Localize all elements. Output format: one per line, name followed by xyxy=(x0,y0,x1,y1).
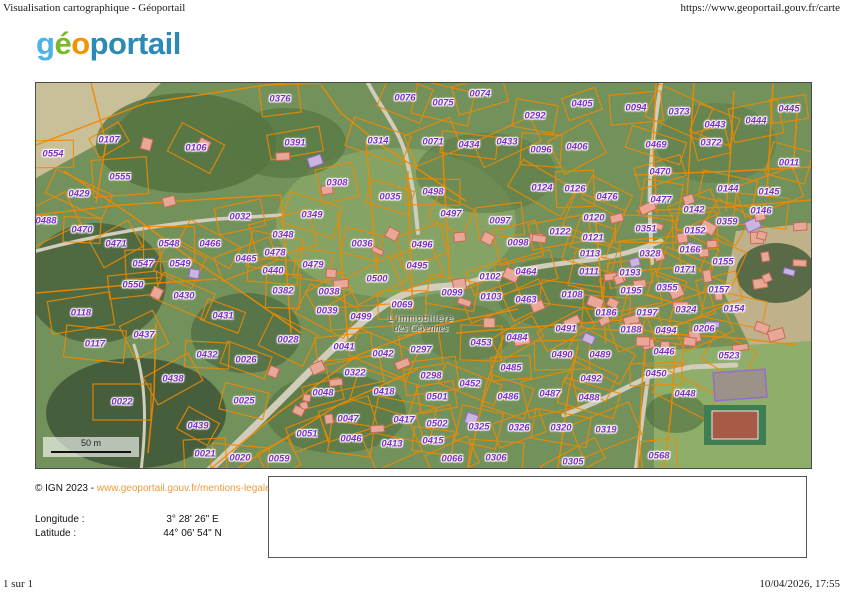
parcel-number-label: 0444 xyxy=(745,116,766,127)
parcel-number-label: 0326 xyxy=(508,423,529,434)
building xyxy=(454,232,466,242)
parcel-number-label: 0489 xyxy=(589,350,610,361)
building xyxy=(761,252,770,262)
parcel-number-label: 0166 xyxy=(679,245,700,256)
building xyxy=(793,222,807,231)
browser-print-title: Visualisation cartographique - Géoportai… xyxy=(3,2,185,14)
parcel-number-label: 0121 xyxy=(582,233,603,244)
parcel-number-label: 0319 xyxy=(595,425,616,436)
latitude-value: 44° 06' 54" N xyxy=(135,528,250,539)
parcel-number-label: 0059 xyxy=(268,454,289,465)
parcel-number-label: 0099 xyxy=(441,288,462,299)
parcel-number-label: 0488 xyxy=(578,393,599,404)
parcel-number-label: 0106 xyxy=(185,143,206,154)
building xyxy=(189,269,200,279)
parcel-number-label: 0111 xyxy=(579,267,599,278)
parcel-number-label: 0478 xyxy=(264,248,285,259)
parcel-number-label: 0431 xyxy=(212,311,233,322)
parcel-number-label: 0432 xyxy=(196,350,217,361)
parcel-number-label: 0042 xyxy=(372,349,393,360)
parcel-number-label: 0051 xyxy=(296,429,317,440)
parcel-number-label: 0487 xyxy=(539,389,560,400)
parcel-number-label: 0550 xyxy=(122,280,143,291)
coordinates-block: Longitude : 3° 28' 26" E Latitude : 44° … xyxy=(35,514,250,542)
parcel-number-label: 0154 xyxy=(723,304,744,315)
parcel-number-label: 0439 xyxy=(187,421,208,432)
parcel-number-label: 0433 xyxy=(496,137,517,148)
parcel-number-label: 0372 xyxy=(700,138,721,149)
parcel-number-label: 0155 xyxy=(712,257,733,268)
parcel-number-label: 0445 xyxy=(778,104,799,115)
parcel-number-label: 0046 xyxy=(340,434,361,445)
parcel-number-label: 0415 xyxy=(422,436,443,447)
parcel-number-label: 0096 xyxy=(530,145,551,156)
parcel-number-label: 0491 xyxy=(555,324,576,335)
parcel-number-label: 0486 xyxy=(497,392,518,403)
parcel-number-label: 0438 xyxy=(162,374,183,385)
parcel-number-label: 0413 xyxy=(381,439,402,450)
parcel-number-label: 0144 xyxy=(717,184,738,195)
building xyxy=(683,337,696,347)
parcel-number-label: 0452 xyxy=(459,379,480,390)
building xyxy=(324,414,333,424)
parcel-number-label: 0032 xyxy=(229,212,250,223)
logo-letter-o: o xyxy=(71,26,89,61)
parcel-number-label: 0298 xyxy=(420,371,441,382)
parcel-number-label: 0041 xyxy=(333,342,354,353)
parcel-number-label: 0025 xyxy=(233,396,254,407)
parcel-number-label: 0325 xyxy=(468,422,489,433)
parcel-number-label: 0470 xyxy=(649,167,670,178)
parcel-number-label: 0349 xyxy=(301,210,322,221)
parcel-number-label: 0450 xyxy=(645,369,666,380)
parcel-number-label: 0477 xyxy=(650,195,671,206)
logo-letter-g: g xyxy=(36,26,54,61)
parcel-number-label: 0498 xyxy=(422,187,443,198)
scale-bar-line xyxy=(51,451,131,453)
parcel-number-label: 0074 xyxy=(469,89,490,100)
parcel-number-label: 0502 xyxy=(426,419,447,430)
logo-word-portail: portail xyxy=(90,26,181,61)
parcel-number-label: 0523 xyxy=(718,351,739,362)
parcel-number-label: 0028 xyxy=(277,335,298,346)
parcel-number-label: 0355 xyxy=(656,283,677,294)
parcel-number-label: 0484 xyxy=(506,333,527,344)
parcel-number-label: 0418 xyxy=(373,387,394,398)
parcel-number-label: 0193 xyxy=(619,268,640,279)
parcel-number-label: 0405 xyxy=(571,99,592,110)
parcel-number-label: 0494 xyxy=(655,326,676,337)
parcel-number-label: 0066 xyxy=(441,454,462,465)
parcel-number-label: 0305 xyxy=(562,457,583,468)
parcel-number-label: 0297 xyxy=(410,345,431,356)
place-name-label: L'immobilière des Cévennes xyxy=(388,313,454,335)
building xyxy=(636,337,650,346)
parcel-number-label: 0117 xyxy=(85,339,105,350)
parcel-number-label: 0322 xyxy=(344,368,365,379)
parcel-number-label: 0171 xyxy=(674,265,695,276)
print-datetime: 10/04/2026, 17:55 xyxy=(759,578,840,590)
parcel-number-label: 0464 xyxy=(515,267,536,278)
parcel-number-label: 0476 xyxy=(596,192,617,203)
parcel-number-label: 0500 xyxy=(366,274,387,285)
parcel-number-label: 0547 xyxy=(132,259,153,270)
building xyxy=(757,231,768,240)
parcel-number-label: 0036 xyxy=(351,239,372,250)
longitude-label: Longitude : xyxy=(35,514,135,525)
parcel-number-label: 0071 xyxy=(422,137,443,148)
parcel-number-label: 0376 xyxy=(269,94,290,105)
parcel-number-label: 0103 xyxy=(480,292,501,303)
parcel-number-label: 0391 xyxy=(284,138,305,149)
parcel-number-label: 0434 xyxy=(458,140,479,151)
parcel-number-label: 0430 xyxy=(173,291,194,302)
geoportail-logo: géoportail xyxy=(36,28,181,59)
building xyxy=(702,270,712,283)
parcel-number-label: 0306 xyxy=(485,453,506,464)
parcel-number-label: 0195 xyxy=(620,286,641,297)
copyright-line: © IGN 2023 - www.geoportail.gouv.fr/ment… xyxy=(35,483,276,494)
parcel-number-label: 0406 xyxy=(566,142,587,153)
parcel-number-label: 0320 xyxy=(550,423,571,434)
parcel-number-label: 0142 xyxy=(683,205,704,216)
parcel-number-label: 0469 xyxy=(645,140,666,151)
parcel-number-label: 0145 xyxy=(758,187,779,198)
parcel-number-label: 0373 xyxy=(668,107,689,118)
parcel-number-label: 0069 xyxy=(391,300,412,311)
parcel-number-label: 0497 xyxy=(440,209,461,220)
parcel-number-label: 0011 xyxy=(779,158,799,169)
parcel-number-label: 0348 xyxy=(272,230,293,241)
parcel-number-label: 0120 xyxy=(583,213,604,224)
place-name-line1: L'immobilière xyxy=(388,313,454,323)
parcel-number-label: 0479 xyxy=(302,260,323,271)
parcel-number-label: 0495 xyxy=(406,261,427,272)
parcel-number-label: 0314 xyxy=(367,136,388,147)
parcel-number-label: 0324 xyxy=(675,305,696,316)
parcel-number-label: 0448 xyxy=(674,389,695,400)
logo-letter-e: é xyxy=(54,26,71,61)
parcel-number-label: 0118 xyxy=(71,308,91,319)
parcel-number-label: 0146 xyxy=(750,206,771,217)
copyright-text: © IGN 2023 - xyxy=(35,483,97,494)
parcel-number-label: 0443 xyxy=(704,120,725,131)
map-viewport[interactable]: 0107055401060555042903760076039103140308… xyxy=(35,82,812,469)
parcel-number-label: 0122 xyxy=(549,227,570,238)
parcel-number-label: 0107 xyxy=(98,135,119,146)
parcel-number-label: 0026 xyxy=(235,355,256,366)
parcel-number-label: 0429 xyxy=(68,189,89,200)
parcel-number-label: 0097 xyxy=(489,216,510,227)
parcel-number-label: 0437 xyxy=(133,330,154,341)
parcel-number-label: 0102 xyxy=(479,272,500,283)
parcel-number-label: 0470 xyxy=(71,225,92,236)
building xyxy=(326,269,337,278)
parcel-number-label: 0038 xyxy=(318,287,339,298)
parcel-number-label: 0206 xyxy=(693,324,714,335)
parcel-number-label: 0035 xyxy=(379,192,400,203)
parcel-number-label: 0359 xyxy=(716,217,737,228)
building xyxy=(484,318,495,328)
parcel-number-label: 0463 xyxy=(515,295,536,306)
parcel-number-label: 0446 xyxy=(653,347,674,358)
parcel-number-label: 0453 xyxy=(470,338,491,349)
building xyxy=(276,152,290,160)
parcel-number-label: 0020 xyxy=(229,453,250,464)
tennis-court xyxy=(704,405,766,445)
parcel-number-label: 0094 xyxy=(625,103,646,114)
parcel-number-label: 0039 xyxy=(316,306,337,317)
longitude-row: Longitude : 3° 28' 26" E xyxy=(35,514,250,525)
parcel-number-label: 0022 xyxy=(111,397,132,408)
parcel-number-label: 0047 xyxy=(337,414,358,425)
parcel-number-label: 0382 xyxy=(272,286,293,297)
parcel-number-label: 0292 xyxy=(524,111,545,122)
parcel-number-label: 0554 xyxy=(42,149,63,160)
parcel-number-label: 0113 xyxy=(580,249,600,260)
parcel-number-label: 0021 xyxy=(194,449,215,460)
parcel-number-label: 0548 xyxy=(158,239,179,250)
parcel-number-label: 0124 xyxy=(531,183,552,194)
browser-print-url: https://www.geoportail.gouv.fr/carte xyxy=(680,2,840,14)
parcel-number-label: 0186 xyxy=(595,308,616,319)
building xyxy=(329,378,343,386)
notes-box xyxy=(268,476,807,558)
parcel-number-label: 0568 xyxy=(648,451,669,462)
parcel-number-label: 0351 xyxy=(635,224,656,235)
building xyxy=(532,234,546,242)
page-number: 1 sur 1 xyxy=(3,578,33,590)
building xyxy=(370,425,384,433)
parcel-number-label: 0098 xyxy=(507,238,528,249)
parcel-number-label: 0501 xyxy=(426,392,447,403)
building xyxy=(303,394,311,402)
parcel-number-label: 0328 xyxy=(639,249,660,260)
parcel-number-label: 0108 xyxy=(561,290,582,301)
scale-bar-label: 50 m xyxy=(43,438,139,448)
parcel-number-label: 0126 xyxy=(564,184,585,195)
parcel-number-label: 0308 xyxy=(326,178,347,189)
parcel-number-label: 0440 xyxy=(262,266,283,277)
parcel-number-label: 0496 xyxy=(411,240,432,251)
longitude-value: 3° 28' 26" E xyxy=(135,514,250,525)
building xyxy=(707,240,717,248)
parcel-number-label: 0492 xyxy=(580,374,601,385)
parcel-number-label: 0555 xyxy=(109,172,130,183)
latitude-row: Latitude : 44° 06' 54" N xyxy=(35,528,250,539)
parcel-number-label: 0152 xyxy=(684,226,705,237)
parcel-number-label: 0465 xyxy=(235,254,256,265)
building xyxy=(793,260,807,267)
parcel-number-label: 0471 xyxy=(105,239,126,250)
print-preview-page: Visualisation cartographique - Géoportai… xyxy=(0,0,843,595)
parcel-number-label: 0490 xyxy=(551,350,572,361)
parcel-number-label: 0197 xyxy=(636,308,657,319)
parcel-number-label: 0488 xyxy=(35,216,56,227)
parcel-number-label: 0417 xyxy=(393,415,414,426)
latitude-label: Latitude : xyxy=(35,528,135,539)
parcel-number-label: 0075 xyxy=(432,98,453,109)
mentions-legales-link[interactable]: www.geoportail.gouv.fr/mentions-legales xyxy=(97,483,276,494)
scale-bar: 50 m xyxy=(43,437,139,457)
parcel-number-label: 0188 xyxy=(620,325,641,336)
public-building xyxy=(713,369,767,401)
parcel-number-label: 0048 xyxy=(312,388,333,399)
parcel-number-label: 0157 xyxy=(708,285,729,296)
parcel-number-label: 0549 xyxy=(169,259,190,270)
place-name-line2: des Cévennes xyxy=(388,323,454,335)
parcel-number-label: 0485 xyxy=(500,363,521,374)
parcel-number-label: 0499 xyxy=(350,312,371,323)
parcel-number-label: 0076 xyxy=(394,93,415,104)
parcel-number-label: 0466 xyxy=(199,239,220,250)
